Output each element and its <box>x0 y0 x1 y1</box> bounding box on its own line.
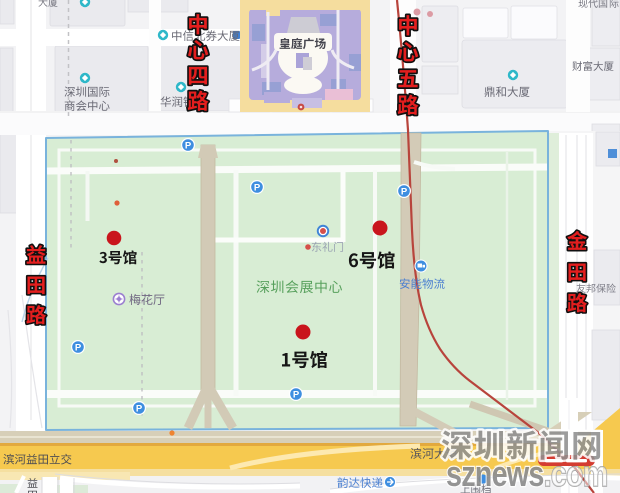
svg-text:P: P <box>185 140 192 151</box>
svg-text:sznews.com: sznews.com <box>446 453 608 493</box>
svg-text:P: P <box>136 403 143 414</box>
svg-text:P: P <box>75 342 82 353</box>
svg-text:P: P <box>293 389 300 400</box>
svg-text:P: P <box>401 186 408 197</box>
svg-text:P: P <box>254 182 261 193</box>
